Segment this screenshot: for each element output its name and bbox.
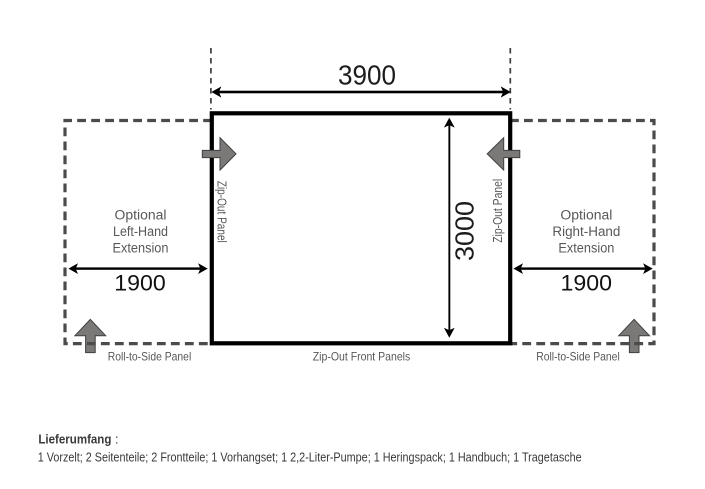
- svg-text:1900: 1900: [114, 271, 166, 296]
- svg-text:Zip-Out Panel: Zip-Out Panel: [491, 179, 505, 243]
- svg-text:3900: 3900: [338, 60, 396, 91]
- svg-text:Optional: Optional: [115, 208, 167, 223]
- svg-text:Roll-to-Side Panel: Roll-to-Side Panel: [536, 349, 620, 363]
- svg-text::: :: [115, 431, 119, 446]
- svg-text:Extension: Extension: [558, 240, 614, 255]
- svg-text:3000: 3000: [450, 201, 480, 261]
- svg-text:Roll-to-Side Panel: Roll-to-Side Panel: [108, 349, 192, 363]
- svg-text:1900: 1900: [561, 271, 613, 296]
- svg-text:1 Vorzelt; 2 Seitenteile; 2 Fr: 1 Vorzelt; 2 Seitenteile; 2 Frontteile; …: [38, 450, 582, 465]
- svg-text:Extension: Extension: [113, 240, 169, 255]
- svg-text:Left-Hand: Left-Hand: [113, 224, 168, 239]
- svg-text:Lieferumfang: Lieferumfang: [38, 431, 111, 446]
- svg-text:Right-Hand: Right-Hand: [552, 224, 620, 239]
- svg-text:Zip-Out Front Panels: Zip-Out Front Panels: [313, 349, 411, 363]
- svg-text:Optional: Optional: [560, 208, 612, 223]
- svg-text:Zip-Out Panel: Zip-Out Panel: [215, 181, 229, 243]
